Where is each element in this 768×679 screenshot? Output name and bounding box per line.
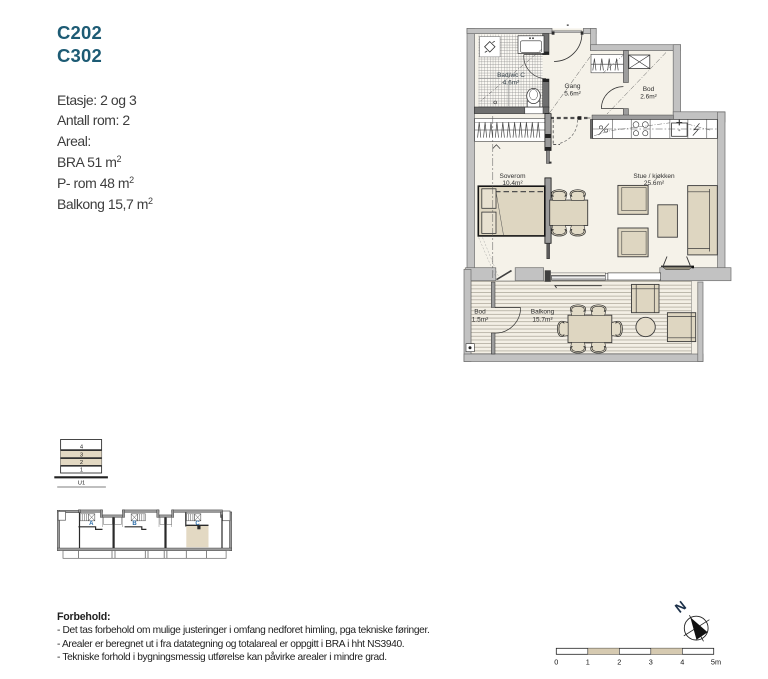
svg-text:3: 3 — [649, 658, 653, 667]
svg-text:0: 0 — [554, 658, 558, 667]
svg-text:2: 2 — [80, 460, 83, 466]
svg-text:Bod: Bod — [474, 309, 486, 316]
svg-text:4.6m²: 4.6m² — [503, 80, 520, 87]
svg-text:5.6m²: 5.6m² — [564, 91, 581, 98]
svg-text:Soverom: Soverom — [499, 173, 525, 180]
svg-text:Stue / kjøkken: Stue / kjøkken — [633, 173, 675, 180]
svg-text:1: 1 — [80, 468, 83, 474]
svg-text:4: 4 — [680, 658, 684, 667]
svg-text:1: 1 — [586, 658, 590, 667]
svg-text:Gang: Gang — [565, 83, 581, 90]
svg-text:15.7m²: 15.7m² — [532, 317, 553, 324]
svg-text:B: B — [132, 521, 137, 527]
svg-text:2: 2 — [617, 658, 621, 667]
svg-text:1.5m²: 1.5m² — [472, 317, 489, 324]
svg-text:Bad/wc C: Bad/wc C — [497, 72, 525, 79]
svg-text:10.4m²: 10.4m² — [502, 180, 523, 187]
svg-text:A: A — [89, 521, 94, 527]
svg-text:Bod: Bod — [643, 86, 655, 93]
svg-text:5m: 5m — [711, 658, 721, 667]
svg-text:2.6m²: 2.6m² — [640, 94, 657, 101]
svg-text:N: N — [672, 598, 689, 616]
svg-text:C: C — [195, 521, 200, 527]
svg-text:U1: U1 — [78, 481, 85, 487]
svg-text:3: 3 — [80, 453, 83, 459]
svg-text:Balkong: Balkong — [531, 309, 555, 316]
